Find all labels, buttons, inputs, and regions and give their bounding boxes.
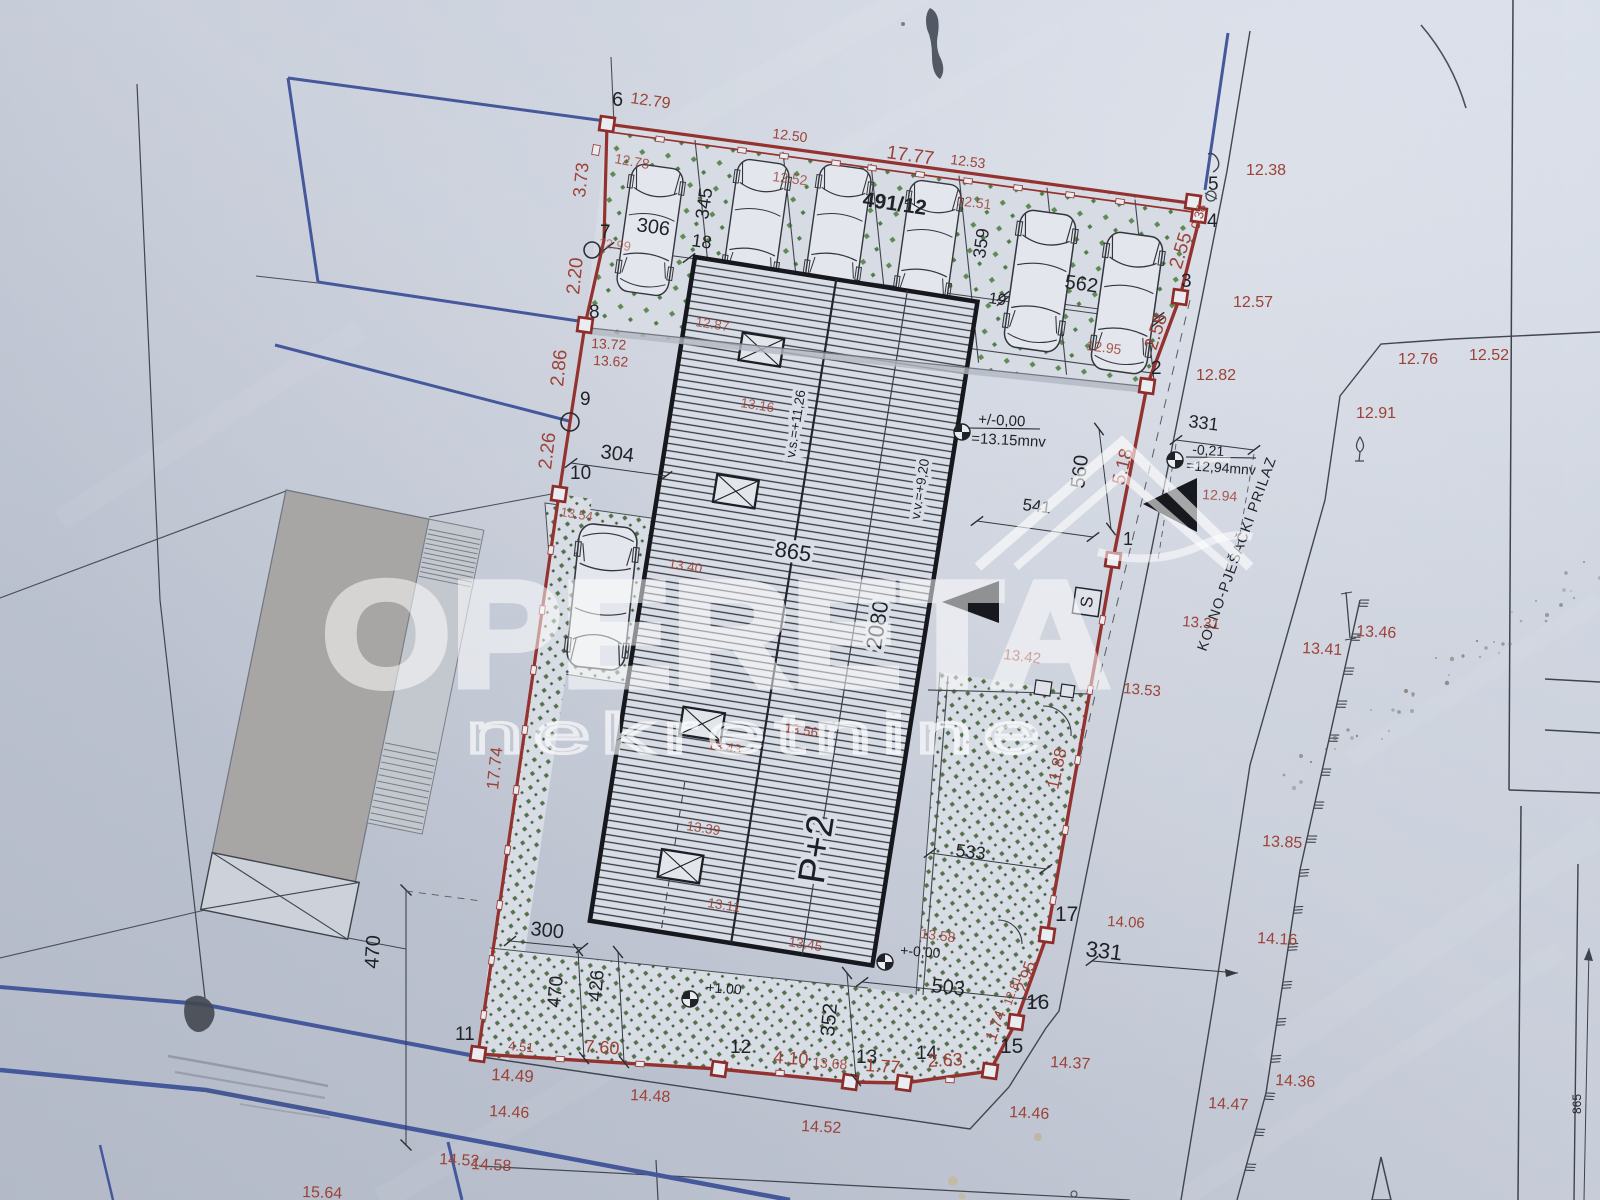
svg-text:3: 3 (1181, 271, 1192, 292)
svg-text:470: 470 (361, 935, 385, 970)
svg-text:14.52: 14.52 (801, 1118, 842, 1137)
svg-text:+-0,00: +-0,00 (900, 942, 941, 961)
svg-text:19: 19 (987, 290, 1007, 309)
svg-text:+1.00: +1.00 (706, 979, 743, 997)
svg-text:13.41: 13.41 (1302, 640, 1343, 659)
svg-text:OPERETA: OPERETA (322, 550, 1110, 718)
svg-text:13.72: 13.72 (591, 335, 627, 353)
svg-text:533: 533 (955, 840, 987, 864)
svg-text:11: 11 (455, 1024, 475, 1045)
svg-text:2.20: 2.20 (563, 257, 588, 296)
svg-text:17: 17 (1055, 903, 1078, 926)
svg-text:18: 18 (690, 230, 713, 253)
svg-text:14.16: 14.16 (1257, 930, 1298, 949)
svg-text:300: 300 (529, 918, 564, 943)
svg-text:4.51: 4.51 (508, 1038, 535, 1055)
svg-text:2.63: 2.63 (927, 1049, 963, 1071)
svg-text:9: 9 (580, 389, 591, 410)
svg-text:14.36: 14.36 (1275, 1072, 1316, 1091)
svg-text:7.60: 7.60 (584, 1036, 620, 1058)
svg-text:13.85: 13.85 (1262, 833, 1303, 852)
svg-text:8: 8 (589, 302, 600, 323)
svg-text:470: 470 (544, 975, 568, 1008)
svg-text:14.06: 14.06 (1107, 913, 1145, 932)
svg-text:14.48: 14.48 (630, 1087, 671, 1106)
svg-text:331: 331 (1188, 411, 1220, 435)
svg-text:15: 15 (1000, 1035, 1023, 1058)
svg-text:306: 306 (635, 214, 671, 240)
svg-text:14.37: 14.37 (1050, 1054, 1091, 1073)
svg-text:12.91: 12.91 (1356, 405, 1396, 422)
svg-text:14.58: 14.58 (471, 1156, 512, 1175)
svg-text:14.47: 14.47 (1208, 1095, 1249, 1114)
svg-text:12.82: 12.82 (1196, 367, 1236, 384)
svg-text:2.26: 2.26 (535, 431, 560, 470)
svg-text:12.52: 12.52 (1469, 347, 1509, 364)
svg-text:426: 426 (585, 969, 609, 1002)
svg-text:5: 5 (1208, 174, 1219, 195)
svg-text:12: 12 (730, 1037, 751, 1058)
svg-text:345: 345 (692, 186, 717, 220)
svg-text:2.86: 2.86 (547, 349, 572, 388)
svg-text:1: 1 (1123, 529, 1133, 549)
svg-text:352: 352 (817, 1002, 842, 1037)
svg-text:12.76: 12.76 (1398, 351, 1438, 368)
svg-text:503: 503 (930, 975, 965, 1000)
svg-text:13.46: 13.46 (1356, 623, 1397, 642)
svg-text:nekretnine: nekretnine (466, 702, 1051, 766)
svg-text:4.10: 4.10 (773, 1047, 809, 1069)
svg-text:4: 4 (1207, 211, 1218, 232)
svg-text:12.57: 12.57 (1233, 294, 1273, 311)
svg-text:14.46: 14.46 (1009, 1104, 1050, 1123)
svg-text:359: 359 (969, 227, 993, 260)
svg-text:6: 6 (612, 89, 623, 111)
svg-text:562: 562 (1063, 271, 1099, 297)
svg-text:13.31: 13.31 (1182, 613, 1221, 633)
svg-text:304: 304 (599, 441, 635, 467)
svg-text:2: 2 (1151, 358, 1162, 379)
svg-text:15.64: 15.64 (302, 1184, 343, 1200)
svg-text:13.53: 13.53 (1123, 680, 1162, 700)
svg-text:+/-0,00: +/-0,00 (978, 411, 1026, 430)
svg-text:14.49: 14.49 (491, 1065, 534, 1086)
svg-text:865: 865 (1570, 1094, 1584, 1114)
svg-text:3.73: 3.73 (569, 161, 593, 198)
svg-text:10: 10 (570, 463, 591, 484)
svg-text:13.68: 13.68 (812, 1054, 848, 1072)
svg-text:12.38: 12.38 (1246, 162, 1286, 179)
svg-text:331: 331 (1084, 936, 1123, 965)
svg-text:14.46: 14.46 (489, 1103, 530, 1122)
svg-text:13.62: 13.62 (593, 352, 629, 370)
svg-text:12.94: 12.94 (1202, 486, 1238, 504)
svg-text:1.77: 1.77 (865, 1055, 901, 1077)
